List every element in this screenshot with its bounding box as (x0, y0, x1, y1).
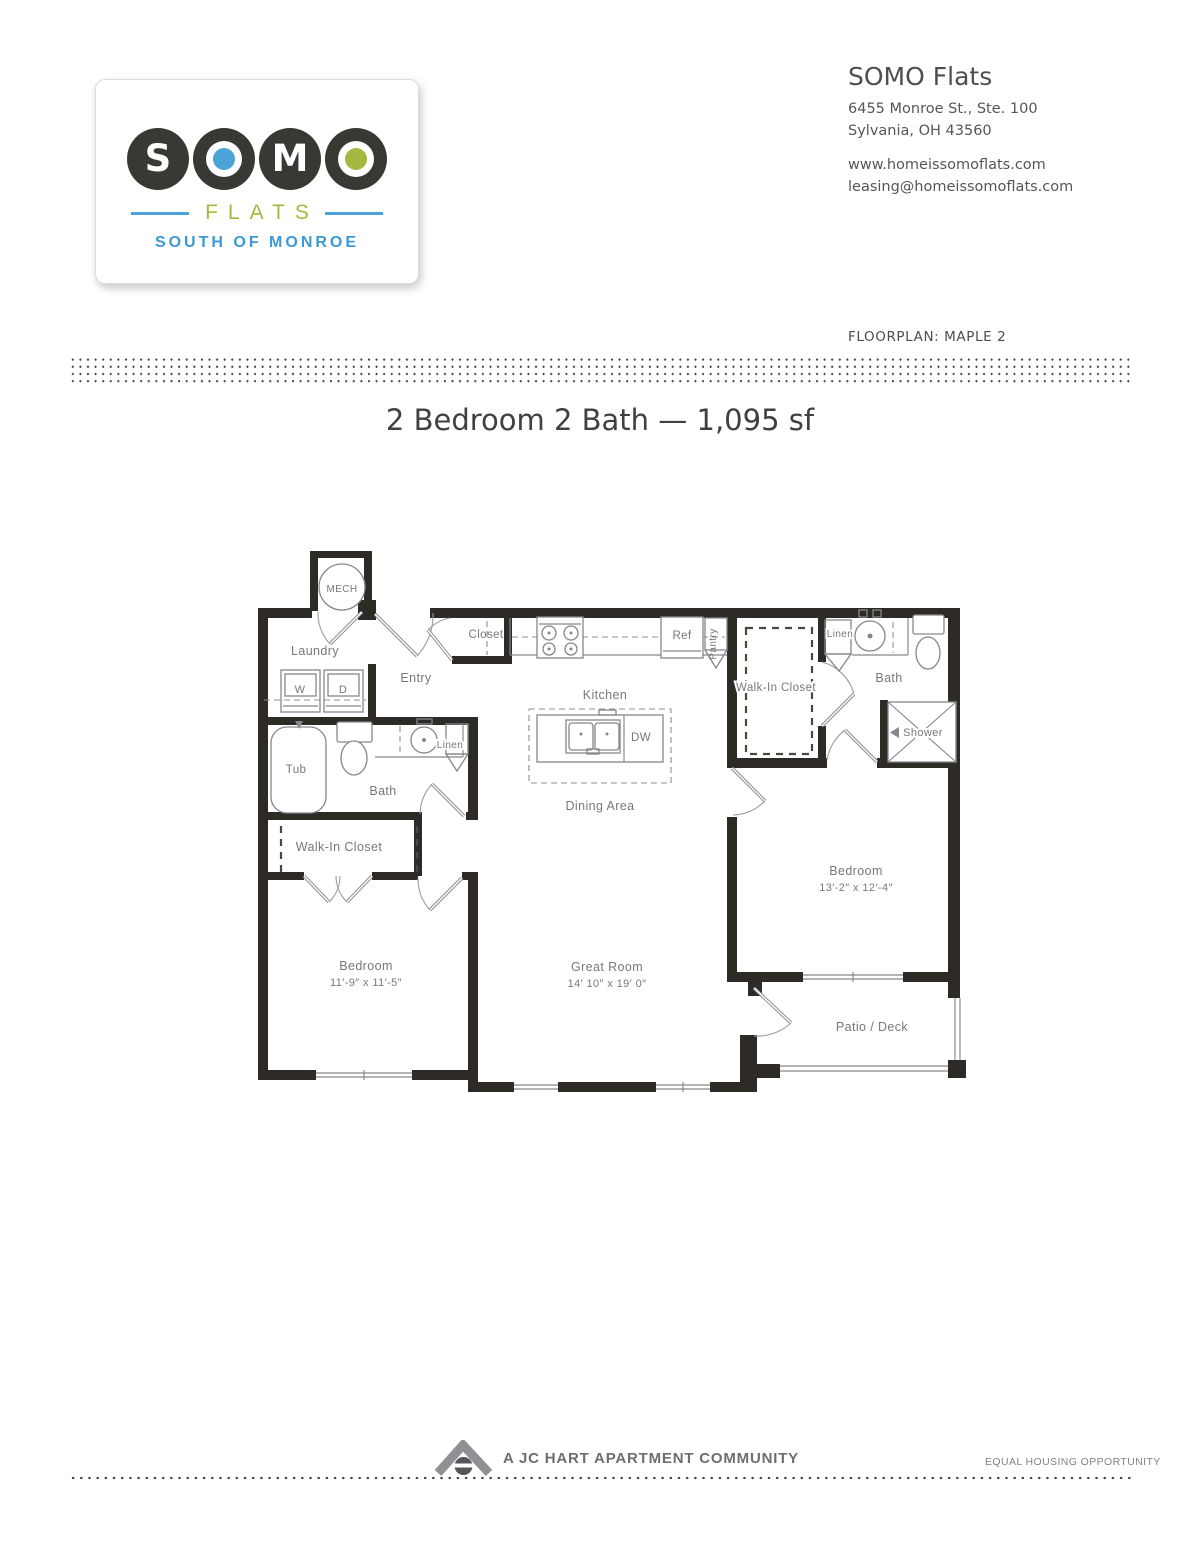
jchart-house-icon (435, 1440, 492, 1477)
logo-green-dot (345, 148, 367, 170)
room-label-patio: Patio / Deck (836, 1020, 909, 1034)
somo-logo-card: S M FLATS SOUTH OF MONROE (95, 79, 419, 284)
logo-letter-s-glyph: S (145, 140, 172, 177)
room-label-wic-left: Walk-In Closet (296, 840, 383, 854)
room-label-bedroom-right: Bedroom (829, 864, 883, 878)
logo-letter-s: S (127, 128, 189, 190)
somo-logo: S M (96, 128, 418, 190)
appliance-label-dryer: D (339, 684, 347, 696)
logo-letter-o-green (325, 128, 387, 190)
room-label-laundry: Laundry (291, 644, 339, 658)
toilet-right (913, 615, 944, 669)
room-label-entry: Entry (400, 671, 432, 685)
room-dims-bedroom-left: 11′-9″ x 11′-5″ (330, 977, 402, 989)
toilet-left (337, 722, 372, 775)
appliance-label-dw: DW (631, 732, 651, 744)
patio-railing (780, 998, 960, 1071)
floorplan-drawing: MECH Laundry W D Entry Closet Kitchen Re… (250, 545, 970, 1110)
equal-housing-label: EQUAL HOUSING OPPORTUNITY (985, 1456, 1161, 1468)
entry-closet-door (428, 618, 452, 660)
logo-blue-dot (213, 148, 235, 170)
website: www.homeissomoflats.com (848, 154, 1073, 176)
logo-letter-o-blue (193, 128, 255, 190)
contact-block: SOMO Flats 6455 Monroe St., Ste. 100 Syl… (848, 62, 1073, 198)
logo-o-ring (206, 141, 242, 177)
flats-wordmark: FLATS (189, 201, 325, 225)
room-dims-bedroom-right: 13′-2″ x 12′-4″ (819, 882, 893, 894)
dotted-separator-bottom (69, 1474, 1132, 1482)
logo-tagline: SOUTH OF MONROE (96, 234, 418, 252)
bath-left-door (420, 784, 464, 816)
room-label-closet: Closet (469, 629, 504, 641)
window-great-room-2 (656, 1082, 710, 1092)
window-great-room-1 (514, 1085, 558, 1089)
property-name: SOMO Flats (848, 62, 1073, 91)
logo-letter-m-glyph: M (272, 140, 309, 177)
stove (537, 617, 583, 658)
mech-door (318, 612, 362, 644)
logo-flats-row: FLATS (96, 201, 418, 225)
room-label-great-room: Great Room (571, 960, 643, 974)
hall-door-right (732, 768, 765, 815)
room-label-mech: MECH (326, 584, 357, 595)
room-label-pantry: Pantry (708, 628, 719, 659)
room-label-dining: Dining Area (565, 799, 634, 813)
email: leasing@homeissomoflats.com (848, 176, 1073, 198)
window-bedroom-left (316, 1070, 412, 1080)
patio-door (754, 988, 791, 1036)
room-label-linen-right: Linen (827, 629, 853, 640)
linen-closet-right (825, 620, 851, 671)
room-label-linen-left: Linen (437, 740, 463, 751)
entry-door (375, 613, 433, 656)
appliance-label-ref: Ref (672, 630, 692, 642)
window-bedroom-right (803, 972, 903, 982)
room-label-wic-right: Walk-In Closet (736, 682, 816, 694)
fixture-label-shower: Shower (903, 727, 943, 739)
floorplan-name-label: FLOORPLAN: MAPLE 2 (848, 329, 1006, 345)
wic-right-door (822, 662, 854, 726)
bath-right-door (827, 730, 877, 762)
flats-dash-right (325, 212, 383, 215)
bedroom-left-door (418, 878, 462, 910)
flats-dash-left (131, 212, 189, 215)
fixture-label-tub: Tub (286, 764, 307, 776)
wic-left-double-doors (304, 876, 372, 902)
room-label-kitchen: Kitchen (583, 688, 628, 702)
logo-o-ring (338, 141, 374, 177)
page-title: 2 Bedroom 2 Bath — 1,095 sf (0, 403, 1200, 437)
floorplan-flyer-page: S M FLATS SOUTH OF MONROE SOMO Flats 645… (0, 0, 1200, 1553)
community-tagline: A JC HART APARTMENT COMMUNITY (503, 1450, 799, 1467)
room-label-bedroom-left: Bedroom (339, 959, 393, 973)
room-dims-great-room: 14′ 10″ x 19′ 0″ (568, 978, 647, 990)
logo-letter-m: M (259, 128, 321, 190)
appliance-label-washer: W (295, 684, 306, 696)
room-labels: MECH Laundry W D Entry Closet Kitchen Re… (286, 584, 943, 1034)
room-label-bath-right: Bath (875, 671, 902, 685)
address-line-2: Sylvania, OH 43560 (848, 120, 1073, 142)
room-label-bath-left: Bath (369, 784, 396, 798)
dotted-separator-top (69, 356, 1132, 383)
address-line-1: 6455 Monroe St., Ste. 100 (848, 98, 1073, 120)
